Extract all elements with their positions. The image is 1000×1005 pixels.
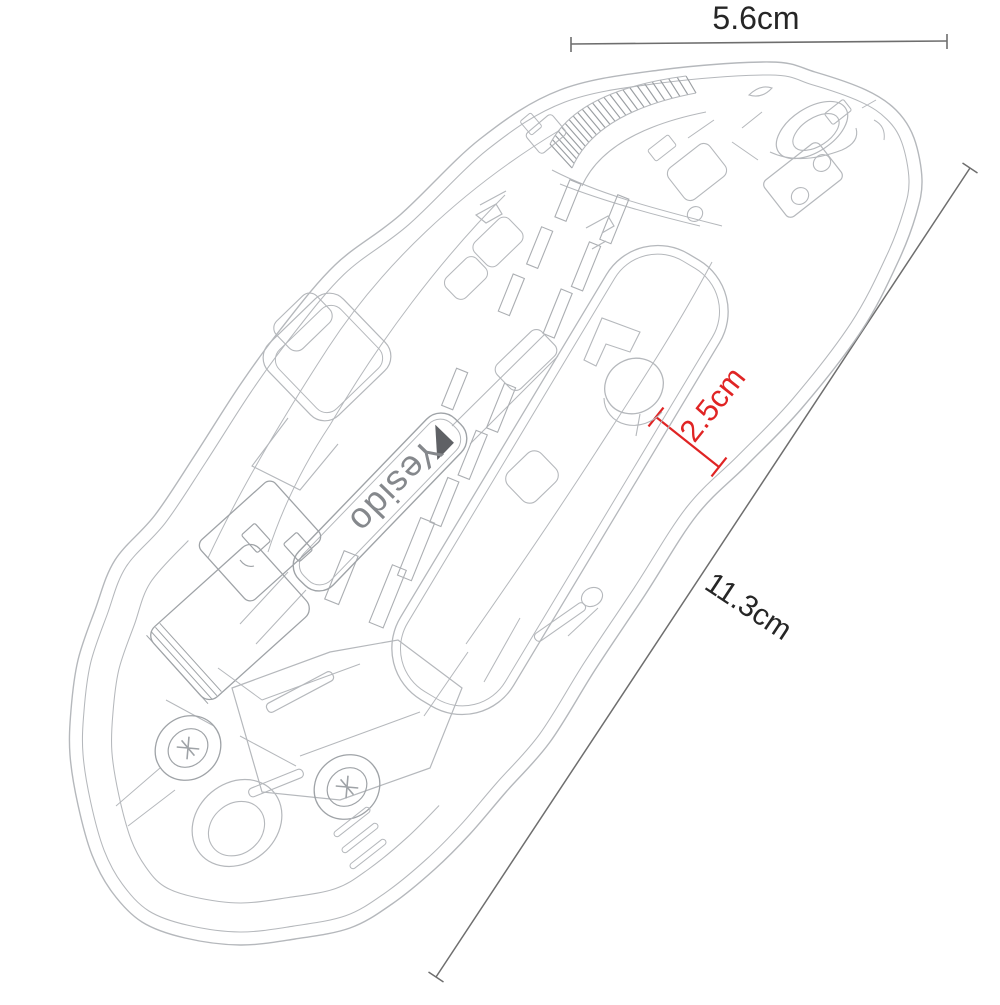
svg-text:5.6cm: 5.6cm (712, 0, 799, 36)
